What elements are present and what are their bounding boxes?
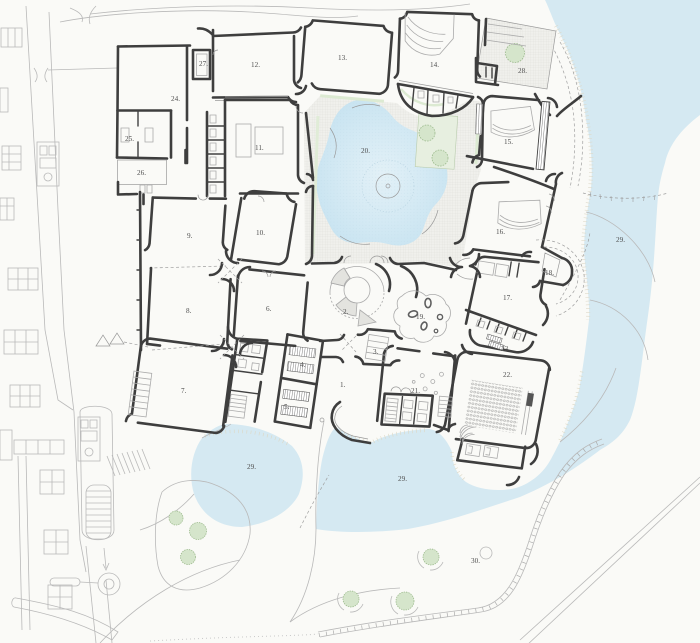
svg-text:24.: 24. xyxy=(171,95,180,103)
svg-text:10.: 10. xyxy=(256,229,265,237)
svg-text:12.: 12. xyxy=(251,61,260,69)
svg-text:29.: 29. xyxy=(247,463,256,471)
svg-text:9.: 9. xyxy=(187,232,193,240)
svg-text:14.: 14. xyxy=(430,61,439,69)
svg-text:25.: 25. xyxy=(125,135,134,143)
svg-text:23.: 23. xyxy=(501,345,510,353)
svg-text:15.: 15. xyxy=(504,138,513,146)
svg-text:21.: 21. xyxy=(411,387,420,395)
svg-text:6.: 6. xyxy=(266,305,272,313)
svg-text:20.: 20. xyxy=(361,147,370,155)
svg-text:4.: 4. xyxy=(300,361,306,369)
svg-text:29.: 29. xyxy=(616,236,625,244)
svg-text:8.: 8. xyxy=(186,307,192,315)
svg-text:13.: 13. xyxy=(338,54,347,62)
svg-text:5.: 5. xyxy=(284,403,290,411)
svg-text:2.: 2. xyxy=(343,308,349,316)
svg-text:18.: 18. xyxy=(545,269,554,277)
svg-text:7.: 7. xyxy=(181,387,187,395)
svg-text:1.: 1. xyxy=(340,381,346,389)
svg-text:22.: 22. xyxy=(503,371,512,379)
svg-text:11.: 11. xyxy=(255,144,264,152)
svg-text:19.: 19. xyxy=(416,313,425,321)
svg-text:3.: 3. xyxy=(373,348,379,356)
svg-text:17.: 17. xyxy=(503,294,512,302)
svg-text:27.: 27. xyxy=(199,60,208,68)
svg-text:29.: 29. xyxy=(398,475,407,483)
svg-text:28.: 28. xyxy=(518,67,527,75)
svg-text:26.: 26. xyxy=(137,169,146,177)
svg-text:30.: 30. xyxy=(471,557,480,565)
svg-text:16.: 16. xyxy=(496,228,505,236)
